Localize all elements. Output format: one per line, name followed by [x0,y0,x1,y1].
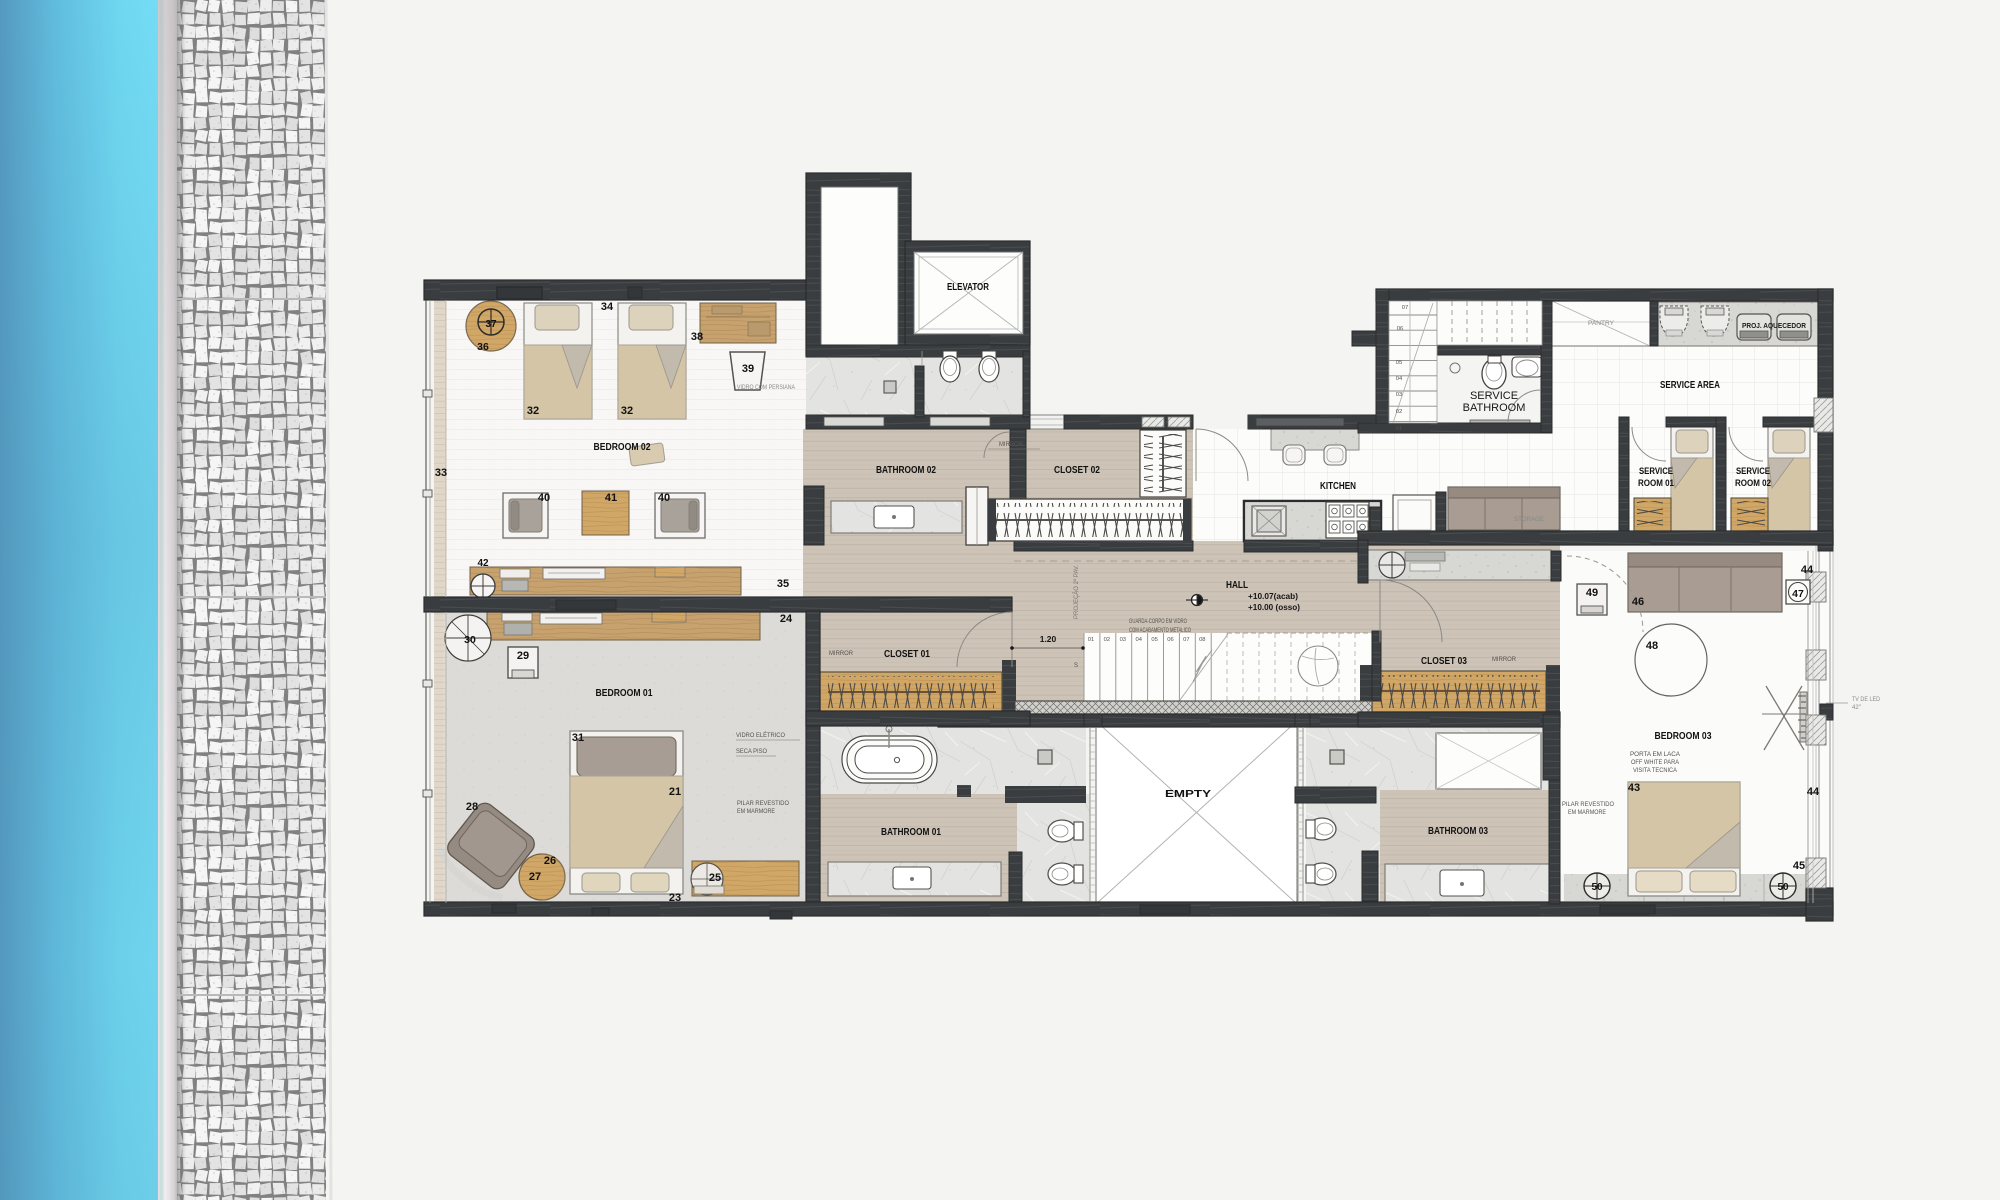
svg-text:CLOSET 01: CLOSET 01 [884,649,930,660]
svg-text:48: 48 [1646,640,1658,652]
svg-text:07: 07 [1402,305,1408,311]
svg-text:MIRROR: MIRROR [1492,657,1517,663]
svg-text:VIDRO ELÉTRICO: VIDRO ELÉTRICO [736,730,785,739]
svg-text:39: 39 [742,363,754,375]
svg-text:EMPTY: EMPTY [1165,789,1211,800]
svg-text:EM MARMORE: EM MARMORE [737,808,776,815]
svg-text:KITCHEN: KITCHEN [1320,481,1356,492]
svg-text:03: 03 [1120,637,1126,643]
svg-text:SERVICE: SERVICE [1639,466,1673,477]
svg-text:BEDROOM 01: BEDROOM 01 [596,688,653,699]
svg-text:VIDRO COM PERSIANA: VIDRO COM PERSIANA [737,385,795,391]
svg-text:40: 40 [538,492,550,504]
svg-text:05: 05 [1151,637,1157,643]
svg-text:ROOM 01: ROOM 01 [1638,478,1675,489]
svg-text:37: 37 [485,319,497,330]
svg-text:ELEVATOR: ELEVATOR [947,282,990,293]
svg-text:49: 49 [1586,587,1598,599]
svg-text:46: 46 [1632,596,1644,608]
svg-text:COM ACABAMENTO METALICO: COM ACABAMENTO METALICO [1129,627,1191,634]
svg-text:BATHROOM 03: BATHROOM 03 [1428,826,1488,837]
svg-text:06: 06 [1167,637,1173,643]
svg-text:44: 44 [1801,564,1814,576]
svg-text:CLOSET 03: CLOSET 03 [1421,656,1467,667]
svg-text:+10.07(acab): +10.07(acab) [1248,592,1298,601]
svg-text:+10.00 (osso): +10.00 (osso) [1248,603,1300,612]
svg-text:04: 04 [1135,637,1142,643]
svg-text:BATHROOM 01: BATHROOM 01 [881,827,941,838]
svg-text:38: 38 [691,331,703,343]
svg-text:BEDROOM 03: BEDROOM 03 [1655,731,1712,742]
svg-text:EM MARMORE: EM MARMORE [1568,809,1607,816]
svg-text:OFF WHITE PARA: OFF WHITE PARA [1631,759,1680,766]
svg-text:27: 27 [529,871,541,883]
svg-text:05: 05 [1396,360,1402,366]
svg-text:PORTA EM LACA: PORTA EM LACA [1630,751,1681,758]
svg-text:32: 32 [621,405,633,417]
svg-text:45: 45 [1793,860,1805,872]
svg-text:S: S [1074,663,1078,669]
svg-text:HALL: HALL [1226,580,1248,591]
svg-text:50: 50 [1777,882,1789,893]
svg-text:42: 42 [477,558,489,569]
svg-text:34: 34 [601,301,614,313]
svg-text:PROJEÇÃO 2º PAV.: PROJEÇÃO 2º PAV. [1071,565,1080,619]
svg-text:29: 29 [517,650,529,662]
svg-text:30: 30 [464,634,476,646]
svg-text:28: 28 [466,801,478,813]
svg-text:04: 04 [1396,376,1403,382]
svg-text:PILAR REVESTIDO: PILAR REVESTIDO [1562,801,1614,808]
svg-text:07: 07 [1183,637,1189,643]
svg-text:47: 47 [1792,588,1804,600]
svg-text:MIRROR: MIRROR [829,651,854,657]
svg-text:BATHROOM: BATHROOM [1463,402,1526,414]
svg-text:40: 40 [658,492,670,504]
svg-text:MIRROR: MIRROR [999,442,1024,448]
svg-text:23: 23 [669,892,681,904]
svg-text:BATHROOM 02: BATHROOM 02 [876,465,936,476]
svg-text:SECA PISO: SECA PISO [736,748,767,755]
svg-text:TV DE LED: TV DE LED [1852,697,1881,703]
svg-text:31: 31 [572,732,584,744]
svg-text:06: 06 [1397,326,1403,332]
svg-text:41: 41 [605,492,617,504]
svg-text:02: 02 [1104,637,1110,643]
svg-text:01: 01 [1396,426,1402,432]
svg-text:43: 43 [1628,782,1640,794]
svg-text:SERVICE: SERVICE [1736,466,1770,477]
svg-text:25: 25 [709,872,721,884]
svg-text:SERVICE: SERVICE [1470,390,1518,402]
svg-text:44: 44 [1807,786,1820,798]
svg-text:ROOM 02: ROOM 02 [1735,478,1771,489]
svg-text:PANTRY: PANTRY [1588,321,1614,327]
svg-text:35: 35 [777,578,789,590]
svg-text:08: 08 [1199,637,1205,643]
svg-text:32: 32 [527,405,539,417]
svg-text:BEDROOM 02: BEDROOM 02 [594,442,651,453]
svg-text:33: 33 [435,467,447,479]
svg-text:03: 03 [1396,392,1402,398]
svg-text:GUARDA-CORPO EM VIDRO: GUARDA-CORPO EM VIDRO [1129,618,1187,625]
svg-text:PILAR REVESTIDO: PILAR REVESTIDO [737,800,789,807]
svg-text:36: 36 [477,341,489,353]
svg-text:PROJ. AQUECEDOR: PROJ. AQUECEDOR [1742,323,1806,330]
svg-text:01: 01 [1088,637,1094,643]
svg-text:SERVICE AREA: SERVICE AREA [1660,380,1720,391]
svg-text:26: 26 [544,855,556,867]
svg-text:02: 02 [1396,409,1402,415]
svg-text:VISITA TECNICA: VISITA TECNICA [1633,767,1678,774]
svg-text:STORAGE: STORAGE [1514,517,1544,523]
svg-text:CLOSET 02: CLOSET 02 [1054,465,1100,476]
svg-text:21: 21 [669,786,681,798]
svg-text:1.20: 1.20 [1040,634,1057,644]
svg-text:50: 50 [1591,882,1603,893]
svg-text:24: 24 [780,613,793,625]
svg-text:42″: 42″ [1852,705,1862,711]
